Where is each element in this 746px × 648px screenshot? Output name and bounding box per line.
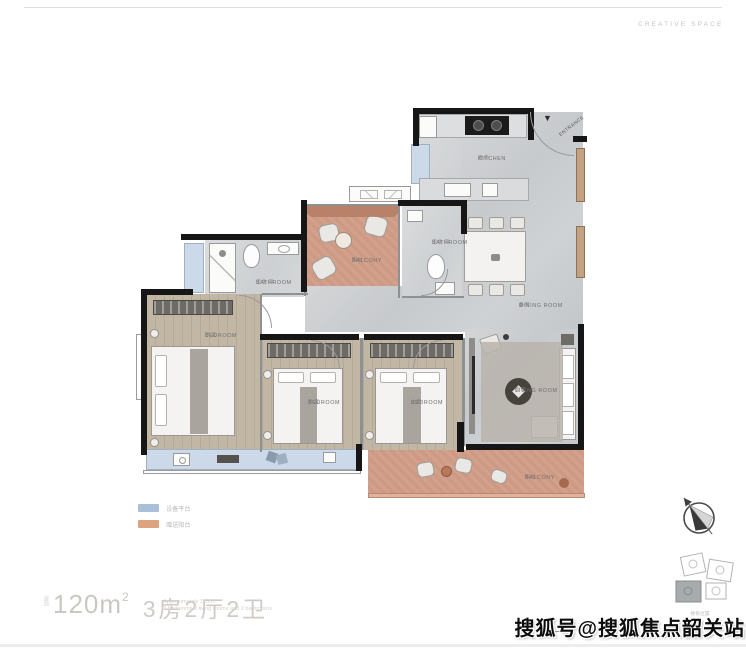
dining-chair — [468, 217, 483, 229]
bathroom-left-toilet — [243, 244, 260, 268]
wall — [260, 334, 359, 340]
kitchen-counter-bottom — [419, 178, 529, 201]
wall-thin — [262, 293, 308, 295]
legend-item-orange: 赠送阳台 — [138, 518, 298, 530]
tv — [472, 356, 475, 414]
wall — [356, 444, 362, 471]
dining-chair — [468, 284, 483, 296]
equip-platform-left — [184, 243, 204, 293]
dining-window-lower — [576, 226, 585, 278]
kitchen-sink — [444, 183, 471, 197]
bench-icon — [217, 455, 239, 463]
side-table — [561, 334, 574, 345]
wall — [573, 136, 587, 142]
legend-label: 赠送阳台 — [166, 520, 190, 529]
wall — [141, 289, 193, 295]
page: CREATIVE SPACE — [0, 0, 746, 648]
fridge — [419, 116, 437, 138]
wall — [413, 108, 419, 146]
wall-thin — [360, 338, 363, 450]
nightstand — [150, 438, 159, 447]
nightstand — [263, 431, 272, 440]
wall — [141, 289, 147, 455]
door-arc-bedroom-left — [239, 295, 272, 328]
balcony-bottom-sill — [368, 493, 585, 498]
wall — [364, 334, 463, 340]
dining-chair — [489, 217, 504, 229]
keyplan — [666, 552, 746, 610]
wall — [413, 108, 534, 114]
dining-chair — [510, 284, 525, 296]
legend-item-blue: 设备平台 — [138, 502, 298, 514]
wall — [466, 444, 584, 450]
floor-plan: ▼ ENTRANCE — [121, 86, 601, 506]
wall — [578, 324, 584, 450]
legend-swatch-blue — [138, 504, 159, 512]
bottom-divider — [0, 644, 746, 647]
wall — [398, 200, 467, 206]
dining-table — [464, 231, 526, 282]
balcony-left-sill — [143, 470, 361, 474]
nightstand — [365, 370, 374, 379]
wall-thin — [402, 296, 464, 298]
dining-chair — [489, 284, 504, 296]
floor-lamp — [503, 334, 509, 340]
washer-icon — [173, 453, 190, 466]
wall — [457, 422, 464, 452]
legend: 设备平台 赠送阳台 — [138, 502, 298, 530]
shower — [209, 243, 236, 293]
kitchen-appliance — [482, 183, 498, 197]
wall — [301, 200, 307, 292]
compass-icon — [672, 490, 724, 542]
area-en-line2: 3 bedrooms 2 living rooms and 2 bathroom… — [163, 605, 272, 612]
legend-label: 设备平台 — [166, 504, 190, 513]
wardrobe — [267, 343, 351, 358]
balcony-top-plants — [307, 206, 398, 217]
storage-box-icon — [323, 452, 336, 463]
nightstand — [263, 370, 272, 379]
stove — [465, 116, 509, 135]
entrance-arrow-icon: ▼ — [543, 113, 552, 123]
area-prefix: 建面 — [44, 597, 50, 607]
bathroom-mid-sink — [407, 210, 423, 222]
top-divider — [24, 7, 722, 8]
wardrobe — [153, 300, 233, 315]
bed-left — [151, 346, 235, 436]
dining-window-upper — [576, 148, 585, 202]
wall — [181, 234, 205, 240]
area-en-line1: Approximately 120m² — [163, 598, 272, 605]
wall-thin — [398, 206, 400, 298]
nightstand — [365, 431, 374, 440]
brand-text: CREATIVE SPACE — [638, 20, 723, 27]
area-sup: 2 — [122, 590, 129, 604]
area-stat-english: Approximately 120m² 3 bedrooms 2 living … — [163, 598, 272, 612]
balcony-bottom-floor — [368, 450, 584, 494]
nightstand — [150, 329, 159, 338]
area-value: 120m — [53, 589, 122, 620]
watermark-text: 搜狐号@搜狐焦点韶关站 — [514, 612, 745, 641]
legend-swatch-orange — [138, 520, 159, 528]
dining-chair — [510, 217, 525, 229]
wall — [461, 200, 467, 234]
bathroom-left-vanity — [267, 242, 299, 255]
wall-thin — [307, 204, 398, 206]
balcony-table-round — [441, 466, 452, 477]
plant-pot — [559, 478, 569, 488]
wall — [201, 234, 305, 240]
balcony-table — [335, 232, 352, 249]
